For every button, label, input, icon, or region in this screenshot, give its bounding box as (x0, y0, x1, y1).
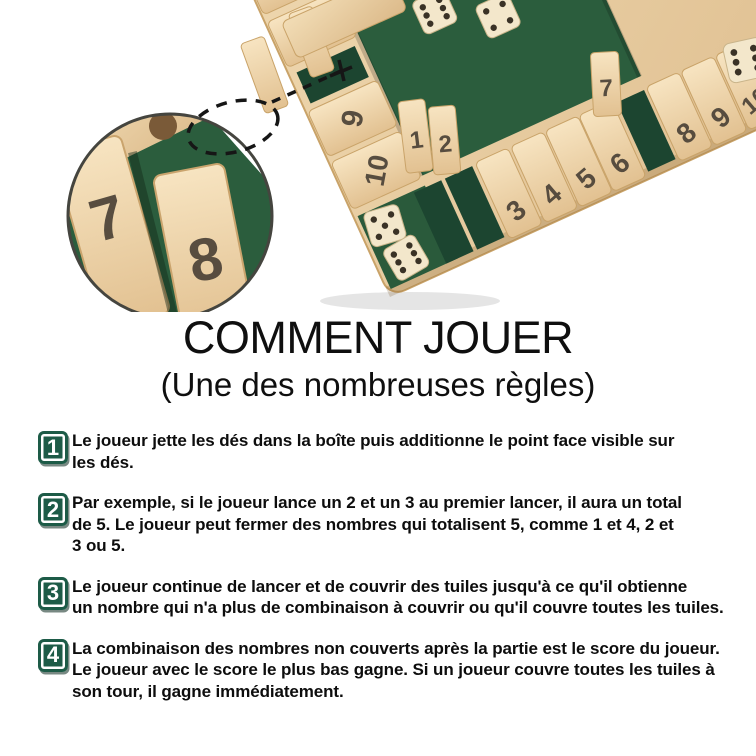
step-1-line-2: les dés. (72, 452, 674, 474)
step-2-line-3: 3 ou 5. (72, 535, 682, 557)
board-photo: 4 6 9 10 (0, 0, 756, 312)
step-1-badge: 1 (38, 431, 68, 464)
tile-7-standing: 7 (590, 51, 621, 116)
rules-list: 1 Le joueur jette les dés dans la boîte … (0, 430, 756, 702)
svg-text:10: 10 (359, 152, 395, 188)
page-title: COMMENT JOUER (0, 314, 756, 362)
rule-step-1: 1 Le joueur jette les dés dans la boîte … (38, 430, 756, 473)
step-4-badge: 4 (38, 639, 68, 672)
rule-step-2: 2 Par exemple, si le joueur lance un 2 e… (38, 492, 756, 557)
tile-2-standing: 2 (428, 105, 461, 175)
step-3-line-1: Le joueur continue de lancer et de couvr… (72, 576, 724, 598)
step-4-line-2: Le joueur avec le score le plus bas gagn… (72, 659, 720, 681)
rule-step-4: 4 La combinaison des nombres non couvert… (38, 638, 756, 703)
step-2-line-1: Par exemple, si le joueur lance un 2 et … (72, 492, 682, 514)
step-2-text: Par exemple, si le joueur lance un 2 et … (72, 492, 682, 557)
step-4-text: La combinaison des nombres non couverts … (72, 638, 720, 703)
rule-step-3: 3 Le joueur continue de lancer et de cou… (38, 576, 756, 619)
svg-text:2: 2 (438, 130, 454, 158)
step-3-badge: 3 (38, 577, 68, 610)
magnifier-circle: 7 8 (0, 37, 272, 312)
step-3-line-2: un nombre qui n'a plus de combinaison à … (72, 597, 724, 619)
step-1-text: Le joueur jette les dés dans la boîte pu… (72, 430, 674, 473)
step-3-text: Le joueur continue de lancer et de couvr… (72, 576, 724, 619)
step-1-line-1: Le joueur jette les dés dans la boîte pu… (72, 430, 674, 452)
svg-text:7: 7 (599, 75, 614, 103)
step-4-line-3: son tour, il gagne immédiatement. (72, 681, 720, 703)
step-2-badge: 2 (38, 493, 68, 526)
page-subtitle: (Une des nombreuses règles) (0, 366, 756, 404)
step-2-line-2: de 5. Le joueur peut fermer des nombres … (72, 514, 682, 536)
step-4-line-1: La combinaison des nombres non couverts … (72, 638, 720, 660)
instruction-page: 4 6 9 10 (0, 0, 756, 756)
board-shadow (320, 292, 500, 310)
